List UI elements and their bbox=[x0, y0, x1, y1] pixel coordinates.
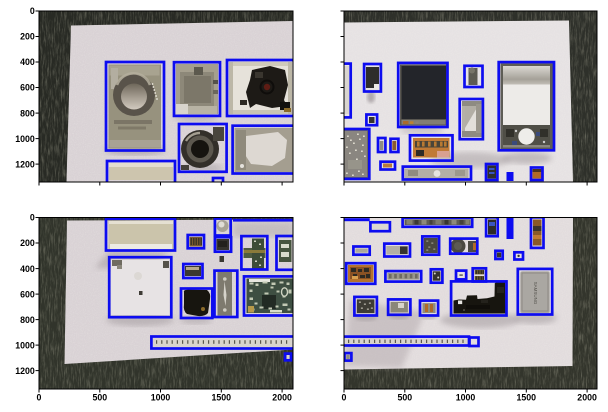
svg-text:1500: 1500 bbox=[517, 393, 537, 403]
svg-text:800: 800 bbox=[20, 315, 35, 325]
svg-text:1000: 1000 bbox=[456, 393, 476, 403]
svg-text:400: 400 bbox=[20, 264, 35, 274]
svg-text:1000: 1000 bbox=[15, 340, 35, 350]
svg-text:500: 500 bbox=[397, 393, 412, 403]
svg-text:800: 800 bbox=[20, 108, 35, 118]
svg-text:0: 0 bbox=[37, 393, 42, 403]
svg-text:SAMSUNG: SAMSUNG bbox=[533, 282, 538, 305]
svg-text:1000: 1000 bbox=[151, 393, 171, 403]
svg-text:1200: 1200 bbox=[15, 366, 35, 376]
svg-text:0: 0 bbox=[30, 213, 35, 223]
svg-text:0: 0 bbox=[30, 6, 35, 16]
svg-text:1000: 1000 bbox=[15, 134, 35, 144]
svg-text:200: 200 bbox=[20, 32, 35, 42]
svg-text:600: 600 bbox=[20, 289, 35, 299]
svg-text:2000: 2000 bbox=[272, 393, 292, 403]
svg-text:2000: 2000 bbox=[577, 393, 597, 403]
svg-text:500: 500 bbox=[92, 393, 107, 403]
svg-text:1200: 1200 bbox=[15, 159, 35, 169]
svg-text:0: 0 bbox=[342, 393, 347, 403]
svg-text:400: 400 bbox=[20, 57, 35, 67]
svg-text:200: 200 bbox=[20, 238, 35, 248]
svg-text:600: 600 bbox=[20, 83, 35, 93]
svg-text:1500: 1500 bbox=[212, 393, 232, 403]
